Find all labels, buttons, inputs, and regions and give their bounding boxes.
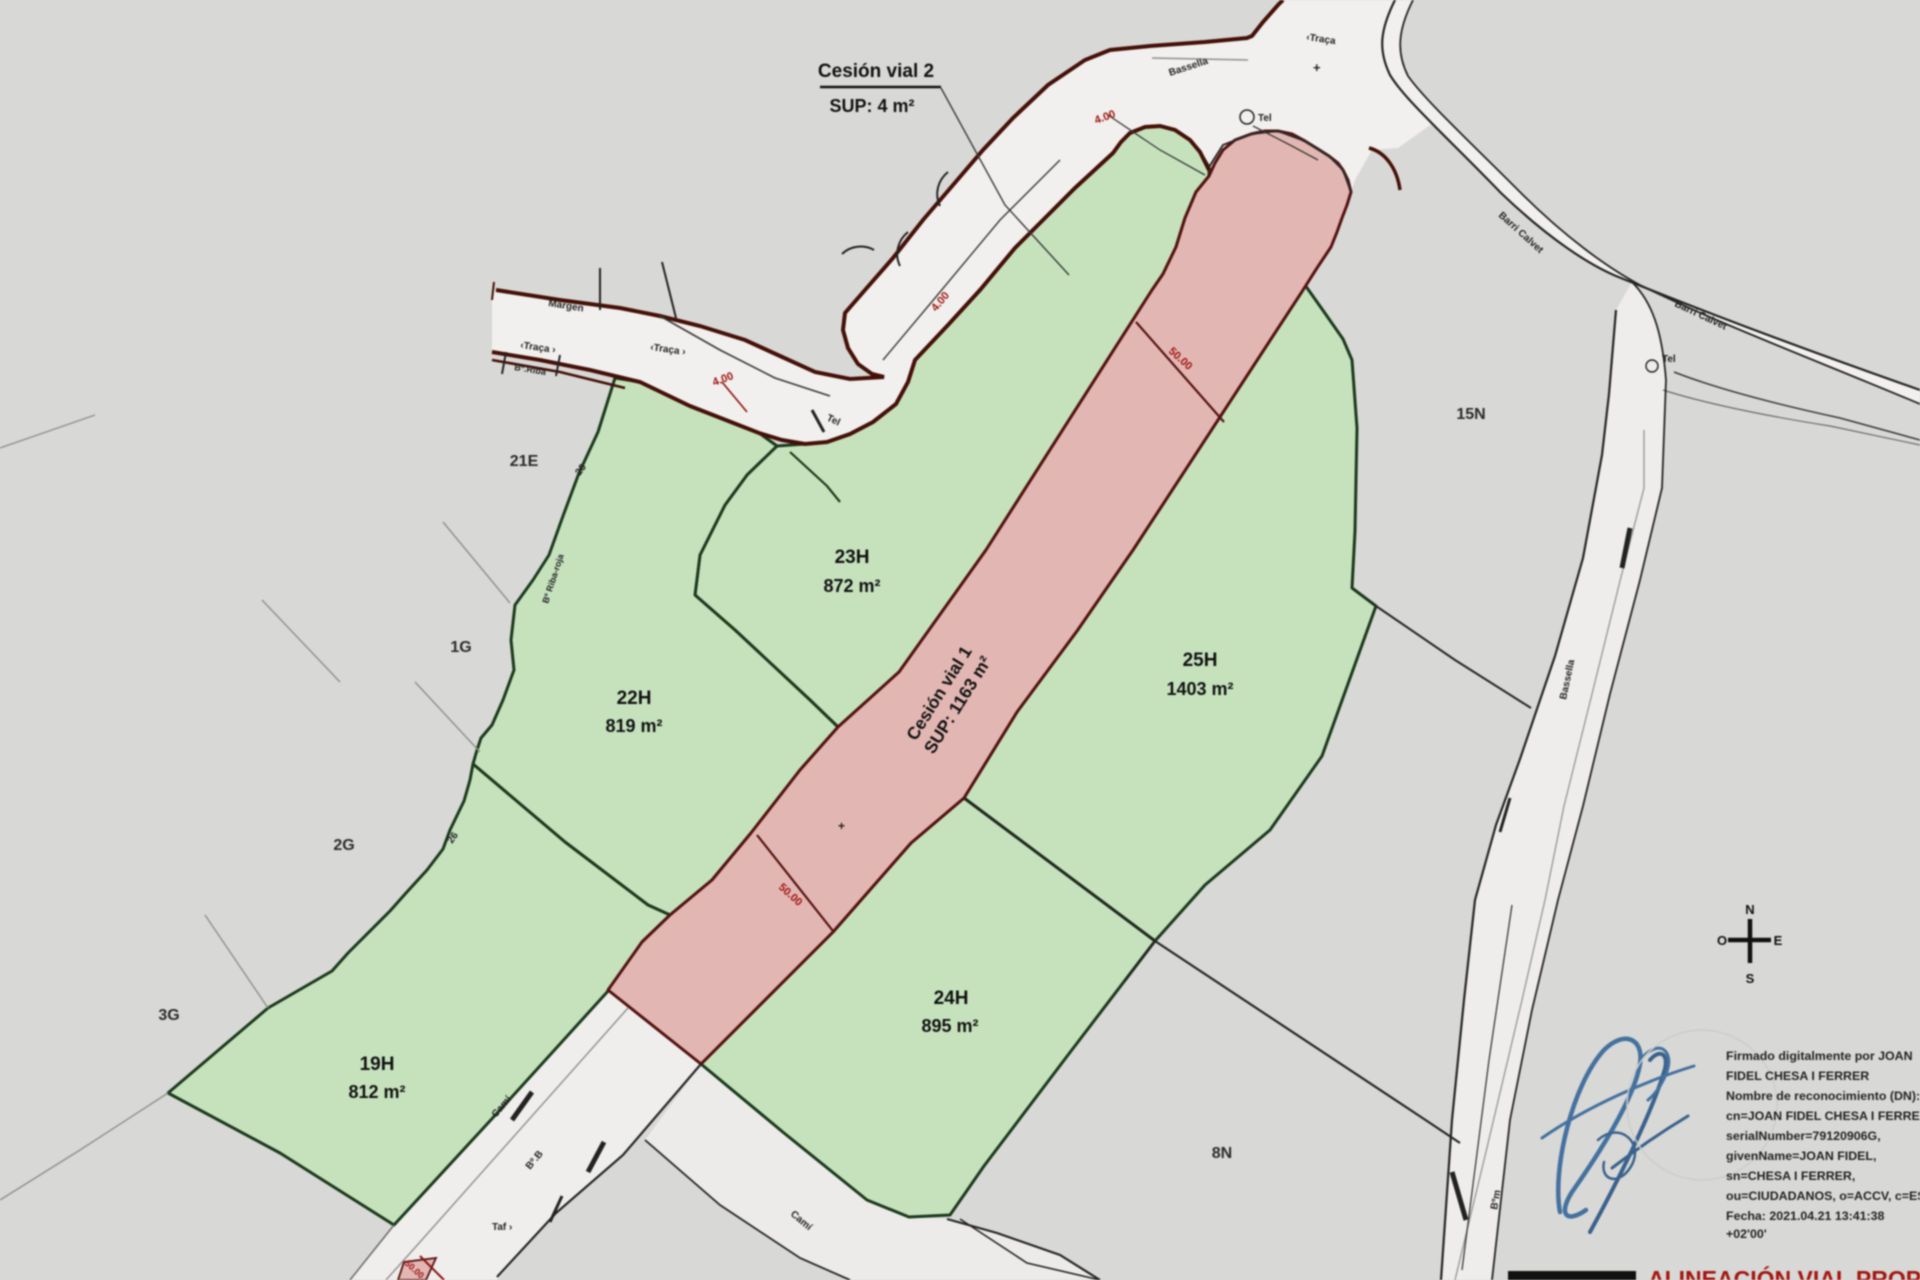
svg-text:1403 m²: 1403 m² [1166,679,1233,699]
svg-text:21E: 21E [510,453,539,470]
svg-text:22H: 22H [617,688,652,709]
svg-text:2G: 2G [333,837,354,854]
svg-text:23H: 23H [835,547,870,568]
svg-text:872 m²: 872 m² [823,576,880,596]
svg-text:3G: 3G [158,1007,179,1024]
svg-text:ou=CIUDADANOS, o=ACCV, c=ES: ou=CIUDADANOS, o=ACCV, c=ES [1726,1189,1920,1203]
svg-text:SUP: 4 m²: SUP: 4 m² [829,96,914,116]
svg-text:15N: 15N [1456,406,1485,423]
svg-text:+: + [838,819,845,833]
svg-text:S: S [1746,971,1755,986]
svg-text:ALINEACIÓN VIAL PROPUESTA: ALINEACIÓN VIAL PROPUESTA [1648,1265,1920,1280]
svg-text:19H: 19H [360,1054,395,1075]
svg-text:O: O [1717,933,1727,948]
svg-text:givenName=JOAN FIDEL,: givenName=JOAN FIDEL, [1726,1149,1876,1163]
svg-text:895 m²: 895 m² [921,1016,978,1036]
svg-text:cn=JOAN FIDEL CHESA I FERRER,: cn=JOAN FIDEL CHESA I FERRER, [1726,1109,1920,1123]
svg-text:25H: 25H [1183,650,1218,671]
svg-text:819 m²: 819 m² [605,716,662,736]
svg-text:Fecha: 2021.04.21 13:41:38: Fecha: 2021.04.21 13:41:38 [1726,1209,1885,1223]
svg-text:Tel: Tel [1662,354,1676,365]
svg-text:Cesión vial 2: Cesión vial 2 [818,61,934,82]
svg-text:sn=CHESA I FERRER,: sn=CHESA I FERRER, [1726,1169,1855,1183]
svg-text:N: N [1745,902,1754,917]
svg-text:1G: 1G [450,639,471,656]
svg-text:Firmado digitalmente por JOAN: Firmado digitalmente por JOAN [1726,1049,1913,1063]
svg-text:8N: 8N [1212,1145,1232,1162]
svg-text:24H: 24H [934,988,969,1009]
svg-text:Tel: Tel [1258,113,1272,124]
svg-text:812 m²: 812 m² [348,1082,405,1102]
svg-text:FIDEL CHESA I FERRER: FIDEL CHESA I FERRER [1726,1069,1869,1083]
svg-text:Nombre de reconocimiento (DN):: Nombre de reconocimiento (DN): [1726,1089,1920,1103]
svg-text:E: E [1774,933,1783,948]
svg-text:+: + [1313,60,1321,75]
svg-text:Taf ›: Taf › [492,1222,512,1233]
svg-text:+02'00': +02'00' [1726,1227,1767,1241]
svg-text:serialNumber=79120906G,: serialNumber=79120906G, [1726,1129,1881,1143]
